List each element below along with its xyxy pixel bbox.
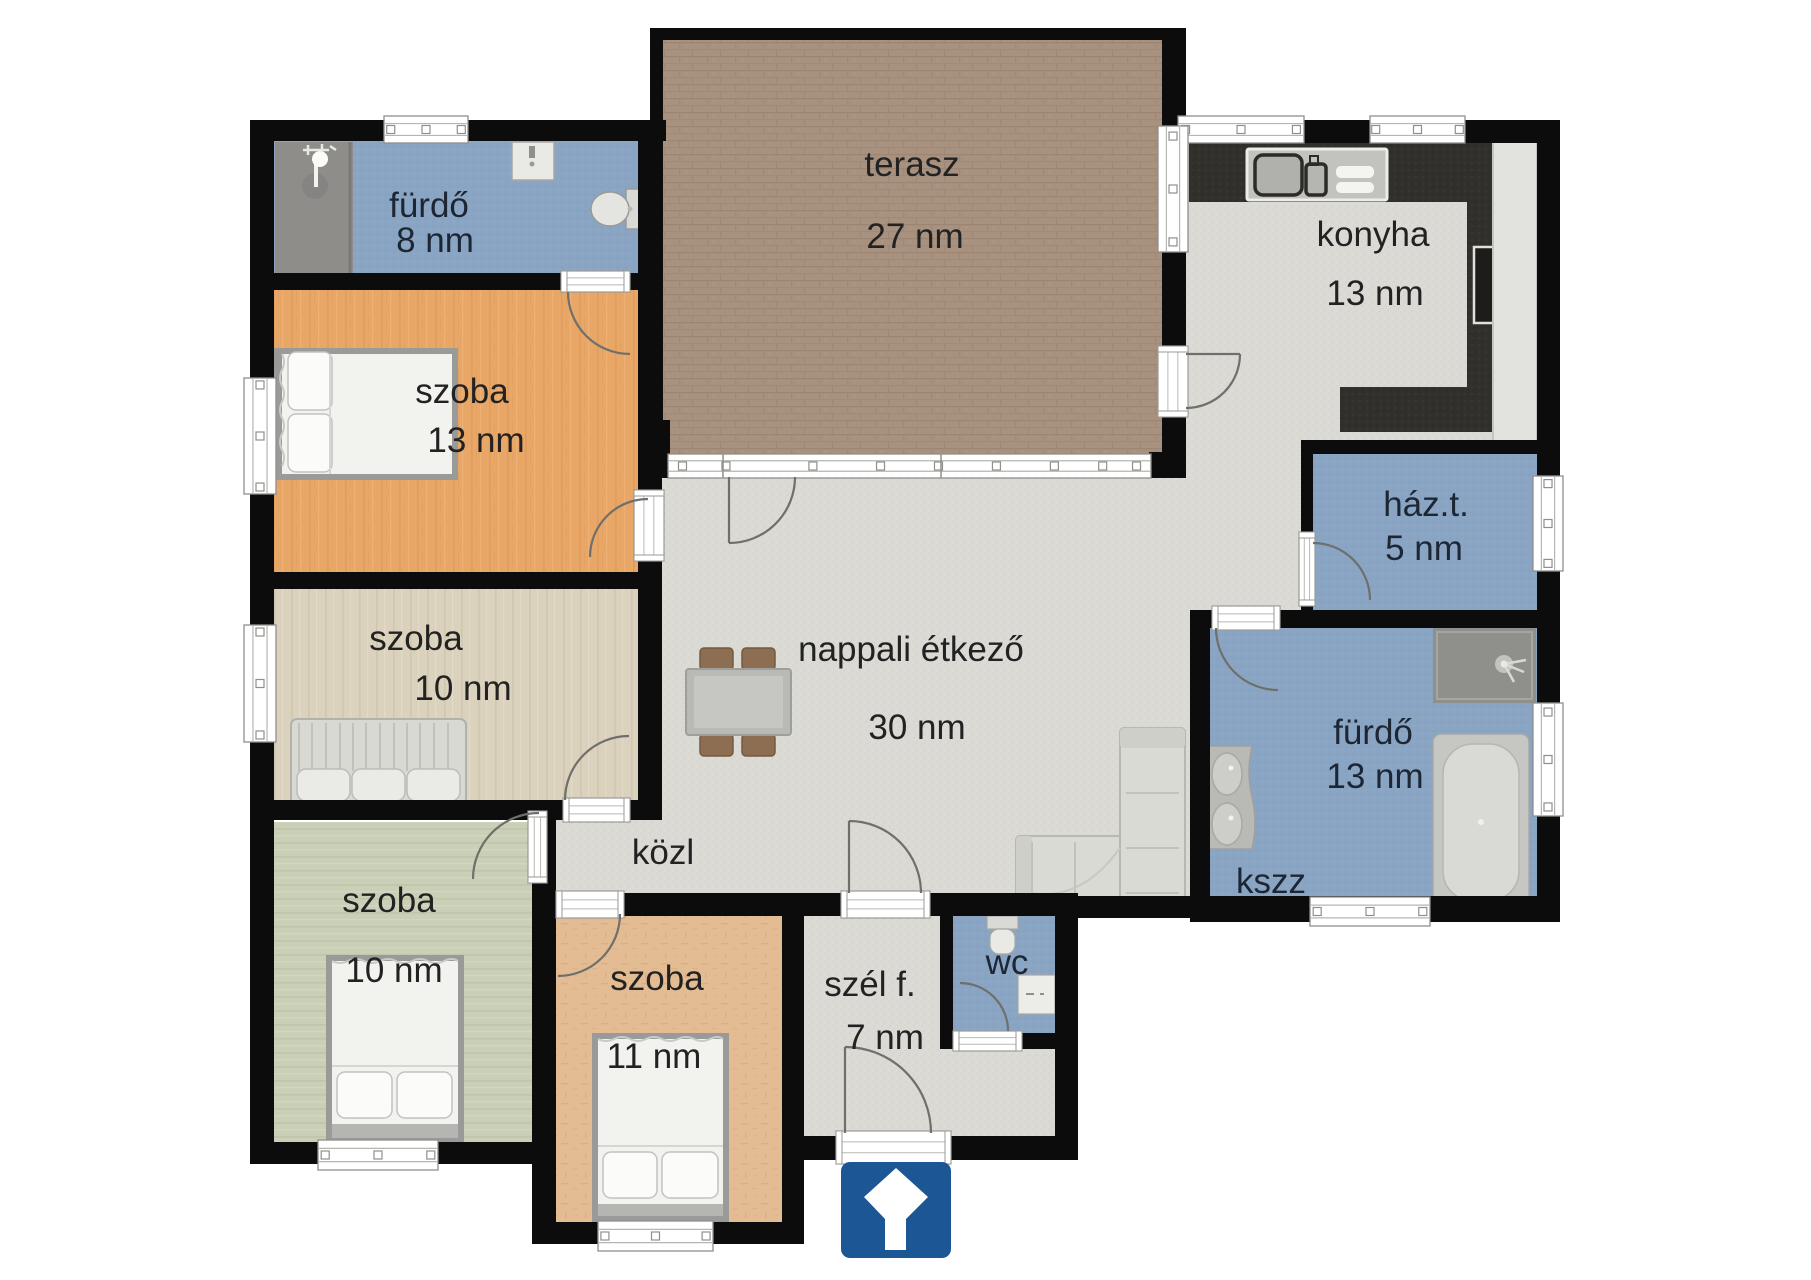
svg-text:wc: wc [985,943,1029,982]
svg-text:szoba: szoba [610,959,704,998]
svg-text:terasz: terasz [864,145,959,184]
svg-text:konyha: konyha [1317,215,1430,254]
svg-text:szoba: szoba [415,372,509,411]
svg-text:szél f.: szél f. [824,965,915,1004]
svg-text:13 nm: 13 nm [1326,757,1423,796]
svg-text:ház.t.: ház.t. [1383,485,1469,524]
svg-text:13 nm: 13 nm [427,421,524,460]
svg-text:kszz: kszz [1236,862,1306,901]
svg-text:nappali étkező: nappali étkező [798,630,1024,669]
svg-text:fürdő: fürdő [1333,713,1413,752]
svg-text:13 nm: 13 nm [1326,274,1423,313]
svg-text:szoba: szoba [369,619,463,658]
svg-text:5 nm: 5 nm [1385,529,1463,568]
svg-text:30 nm: 30 nm [868,708,965,747]
svg-text:11 nm: 11 nm [607,1037,702,1076]
svg-text:7 nm: 7 nm [846,1018,924,1057]
svg-text:10 nm: 10 nm [345,951,442,990]
svg-text:szoba: szoba [342,881,436,920]
svg-text:27 nm: 27 nm [866,217,963,256]
svg-text:fürdő: fürdő [389,186,469,225]
svg-text:10 nm: 10 nm [414,669,511,708]
svg-text:8 nm: 8 nm [396,221,474,260]
svg-text:közl: közl [632,833,694,872]
